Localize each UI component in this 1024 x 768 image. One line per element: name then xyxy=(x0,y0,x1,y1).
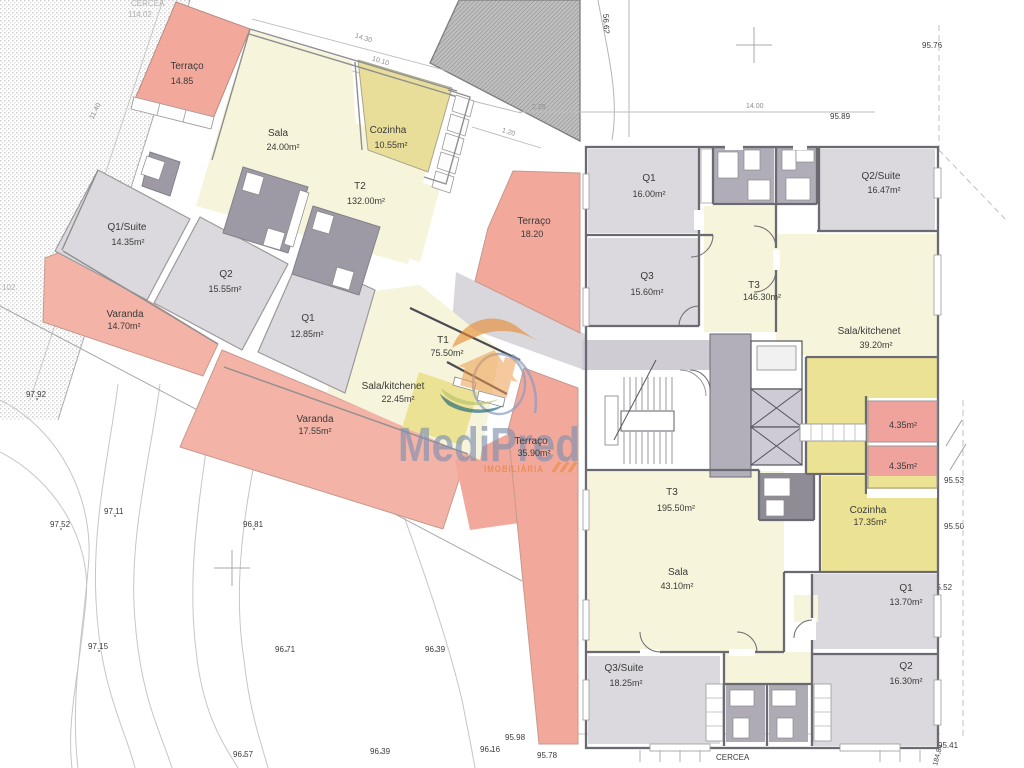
svg-text:97.11: 97.11 xyxy=(104,507,124,516)
svg-text:Varanda: Varanda xyxy=(296,414,334,425)
svg-text:14.85: 14.85 xyxy=(171,76,194,86)
svg-text:Cozinha: Cozinha xyxy=(370,125,407,136)
svg-text:Sala: Sala xyxy=(268,128,288,139)
svg-text:96.16: 96.16 xyxy=(480,745,501,754)
svg-text:10.55m²: 10.55m² xyxy=(374,140,407,150)
svg-text:Q1: Q1 xyxy=(642,173,656,184)
svg-text:T2: T2 xyxy=(354,181,366,192)
svg-text:Terraço: Terraço xyxy=(517,216,551,227)
svg-text:96.81: 96.81 xyxy=(243,520,264,529)
svg-text:Varanda: Varanda xyxy=(106,309,144,320)
svg-text:132.00m²: 132.00m² xyxy=(347,196,385,206)
svg-text:Q3: Q3 xyxy=(640,271,654,282)
svg-text:Sala/kitchenet: Sala/kitchenet xyxy=(362,381,425,392)
svg-text:75.50m²: 75.50m² xyxy=(430,348,463,358)
svg-text:T3: T3 xyxy=(666,487,678,498)
svg-text:14.35m²: 14.35m² xyxy=(111,237,144,247)
svg-text:4.35m²: 4.35m² xyxy=(889,461,917,471)
svg-text:Q1/Suite: Q1/Suite xyxy=(108,222,147,233)
svg-text:95.50: 95.50 xyxy=(944,522,965,531)
svg-text:13.70m²: 13.70m² xyxy=(889,597,922,607)
svg-text:Q1: Q1 xyxy=(301,313,315,324)
svg-text:T3: T3 xyxy=(748,280,760,291)
svg-text:CERCEA: CERCEA xyxy=(131,0,165,8)
svg-text:96.57: 96.57 xyxy=(233,750,254,759)
svg-text:39.20m²: 39.20m² xyxy=(859,340,892,350)
svg-text:Q1: Q1 xyxy=(899,583,913,594)
svg-text:18.20: 18.20 xyxy=(521,229,544,239)
svg-text:22.45m²: 22.45m² xyxy=(381,394,414,404)
svg-text:T1: T1 xyxy=(437,335,449,346)
svg-text:35.90m²: 35.90m² xyxy=(517,448,550,458)
svg-text:15.55m²: 15.55m² xyxy=(208,284,241,294)
svg-text:18.25m²: 18.25m² xyxy=(609,678,642,688)
svg-text:195.50m²: 195.50m² xyxy=(657,503,695,513)
svg-text:Terraço: Terraço xyxy=(170,61,204,72)
svg-text:43.10m²: 43.10m² xyxy=(660,581,693,591)
svg-text:12.85m²: 12.85m² xyxy=(290,329,323,339)
svg-text:Terraço: Terraço xyxy=(514,436,548,447)
svg-text:IMOBILIÁRIA: IMOBILIÁRIA xyxy=(484,464,544,474)
svg-text:17.55m²: 17.55m² xyxy=(298,426,331,436)
svg-text:97.52: 97.52 xyxy=(50,520,71,529)
svg-text:96.71: 96.71 xyxy=(275,645,296,654)
svg-text:16.30m²: 16.30m² xyxy=(889,676,922,686)
svg-text:16.47m²: 16.47m² xyxy=(867,185,900,195)
svg-text:CERCEA: CERCEA xyxy=(716,753,750,762)
svg-text:17.35m²: 17.35m² xyxy=(853,517,886,527)
svg-text:Q2: Q2 xyxy=(899,661,913,672)
svg-text:95.53: 95.53 xyxy=(944,476,965,485)
svg-text:Sala/kitchenet: Sala/kitchenet xyxy=(838,326,901,337)
svg-text:Q3/Suite: Q3/Suite xyxy=(605,663,644,674)
svg-text:97.92: 97.92 xyxy=(26,390,47,399)
svg-text:14.70m²: 14.70m² xyxy=(107,321,140,331)
svg-text:Cozinha: Cozinha xyxy=(850,505,887,516)
svg-text:Sala: Sala xyxy=(668,567,688,578)
svg-text:95.98: 95.98 xyxy=(505,733,526,742)
svg-text:24.00m²: 24.00m² xyxy=(266,142,299,152)
svg-text:102.: 102. xyxy=(2,283,18,292)
svg-text:96.39: 96.39 xyxy=(370,747,391,756)
svg-text:96.39: 96.39 xyxy=(425,645,446,654)
svg-text:95.78: 95.78 xyxy=(537,751,558,760)
svg-text:146.30m²: 146.30m² xyxy=(743,292,781,302)
svg-text:97.15: 97.15 xyxy=(88,642,109,651)
svg-text:14.00: 14.00 xyxy=(746,103,764,110)
svg-text:Q2/Suite: Q2/Suite xyxy=(862,171,901,182)
svg-text:16.00m²: 16.00m² xyxy=(632,189,665,199)
svg-text:95.89: 95.89 xyxy=(830,112,851,121)
svg-text:114.02: 114.02 xyxy=(128,10,152,19)
svg-text:4.35m²: 4.35m² xyxy=(889,420,917,430)
svg-text:15.60m²: 15.60m² xyxy=(630,287,663,297)
svg-text:2.25: 2.25 xyxy=(532,104,546,111)
svg-text:Q2: Q2 xyxy=(219,269,233,280)
